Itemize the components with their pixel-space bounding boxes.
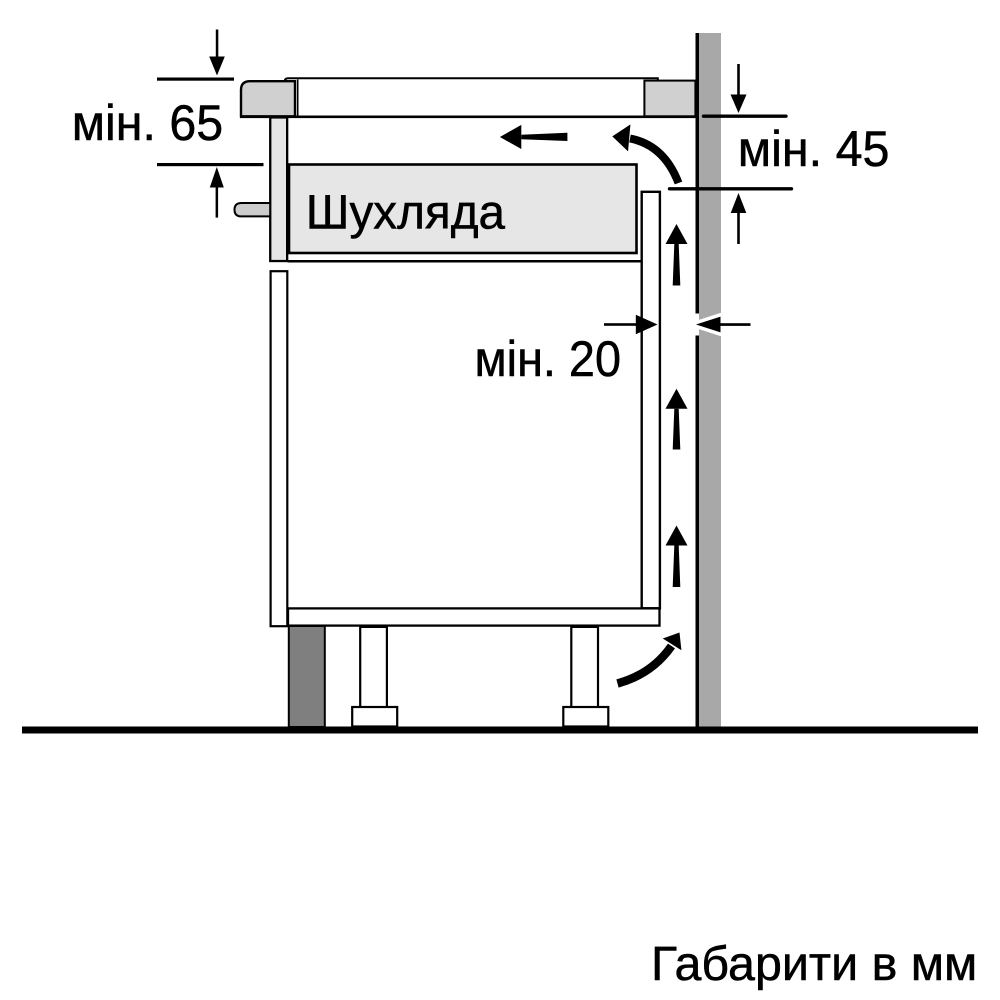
svg-text:Габарити в мм: Габарити в мм	[651, 937, 977, 991]
svg-text:Шухляда: Шухляда	[306, 187, 505, 240]
svg-text:мін. 45: мін. 45	[738, 121, 890, 177]
svg-text:мін. 65: мін. 65	[72, 95, 223, 151]
svg-text:мін. 20: мін. 20	[475, 331, 622, 387]
